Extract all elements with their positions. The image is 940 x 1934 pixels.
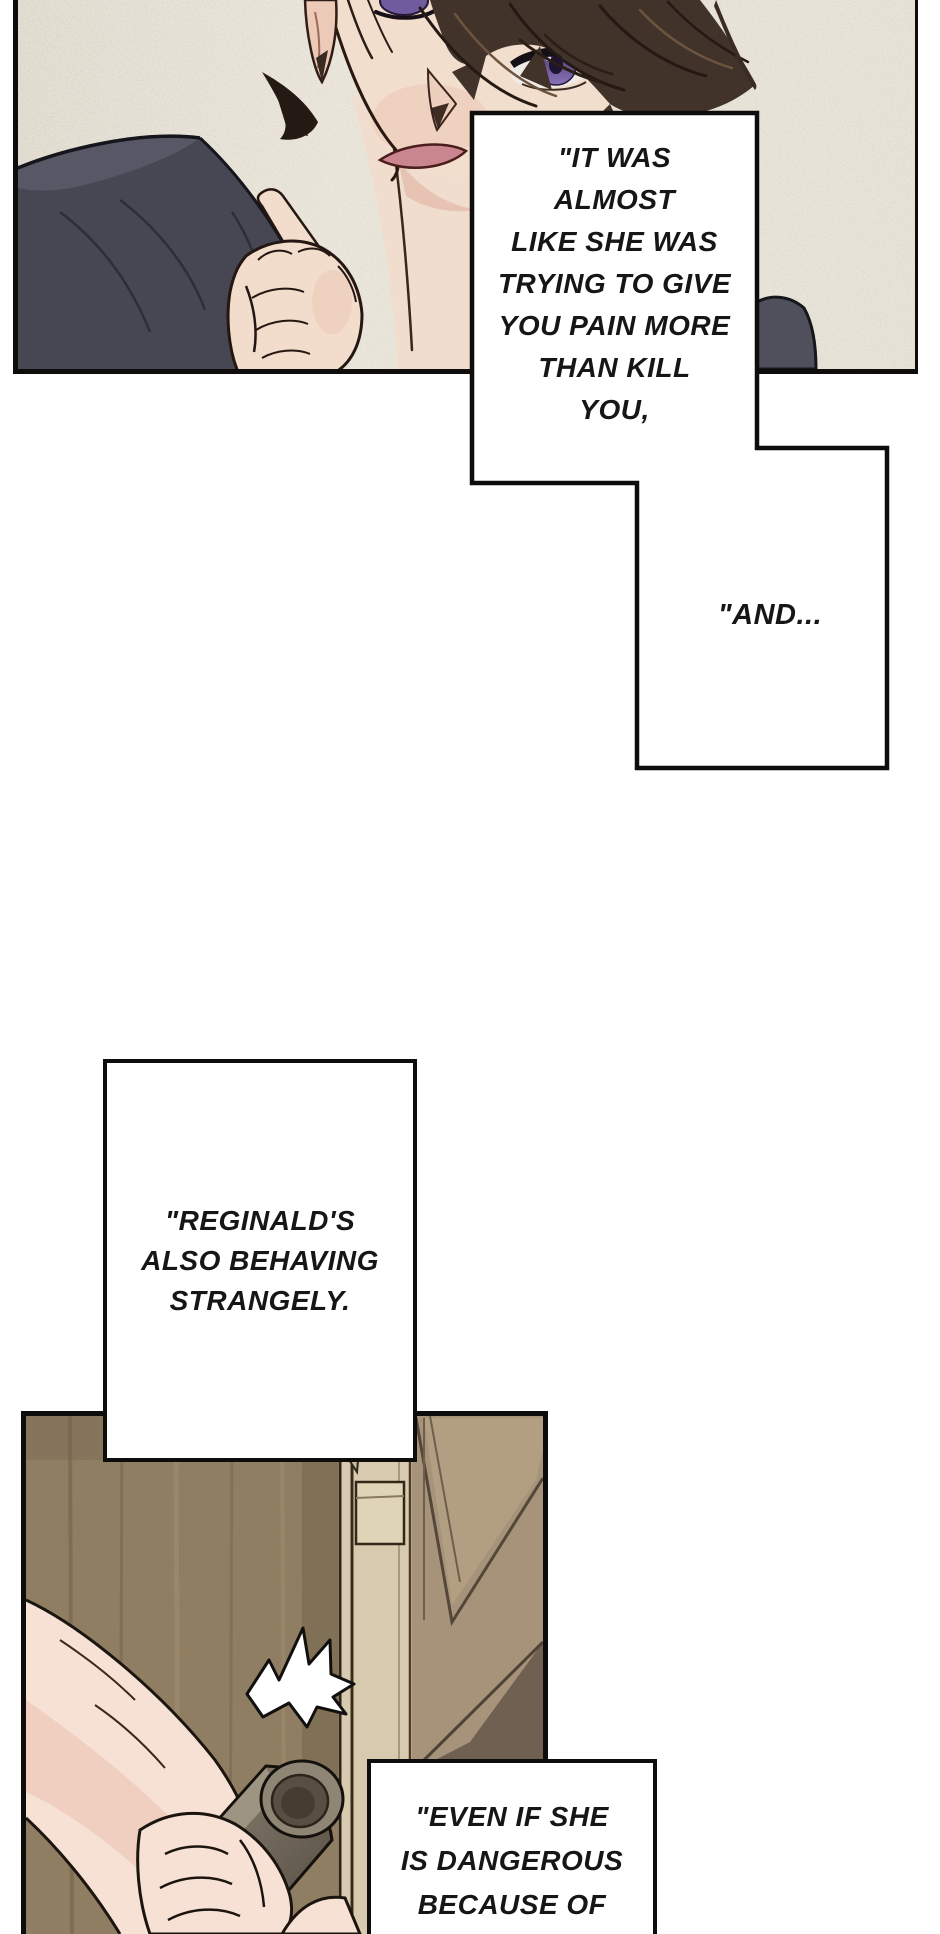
panel-top [13,0,918,374]
speech-line: TRYING TO GIVE [498,263,731,305]
speech-bubble-1: "IT WAS ALMOST LIKE SHE WAS TRYING TO GI… [472,113,757,483]
speech-line: YOU, [579,389,649,431]
speech-bubble-2: "AND... [637,448,887,768]
speech-line: IS DANGEROUS [401,1839,623,1883]
speech-line: ALMOST [554,179,675,221]
speech-line: ALSO BEHAVING [141,1241,379,1281]
speech-bubble-4: "EVEN IF SHE IS DANGEROUS BECAUSE OF [367,1759,657,1934]
speech-line: YOU PAIN MORE [499,305,731,347]
speech-line: "REGINALD'S [165,1201,355,1241]
speech-line: "IT WAS [558,137,671,179]
speech-line: LIKE SHE WAS [511,221,718,263]
speech-bubble-3: "REGINALD'S ALSO BEHAVING STRANGELY. [103,1059,417,1462]
panel-top-art [18,0,915,369]
speech-line: BECAUSE OF [418,1883,607,1927]
speech-line: STRANGELY. [170,1281,351,1321]
speech-line: "EVEN IF SHE [415,1795,609,1839]
speech-line: THAN KILL [538,347,690,389]
speech-line: "AND... [718,595,822,635]
comic-page: "IT WAS ALMOST LIKE SHE WAS TRYING TO GI… [0,0,940,1934]
